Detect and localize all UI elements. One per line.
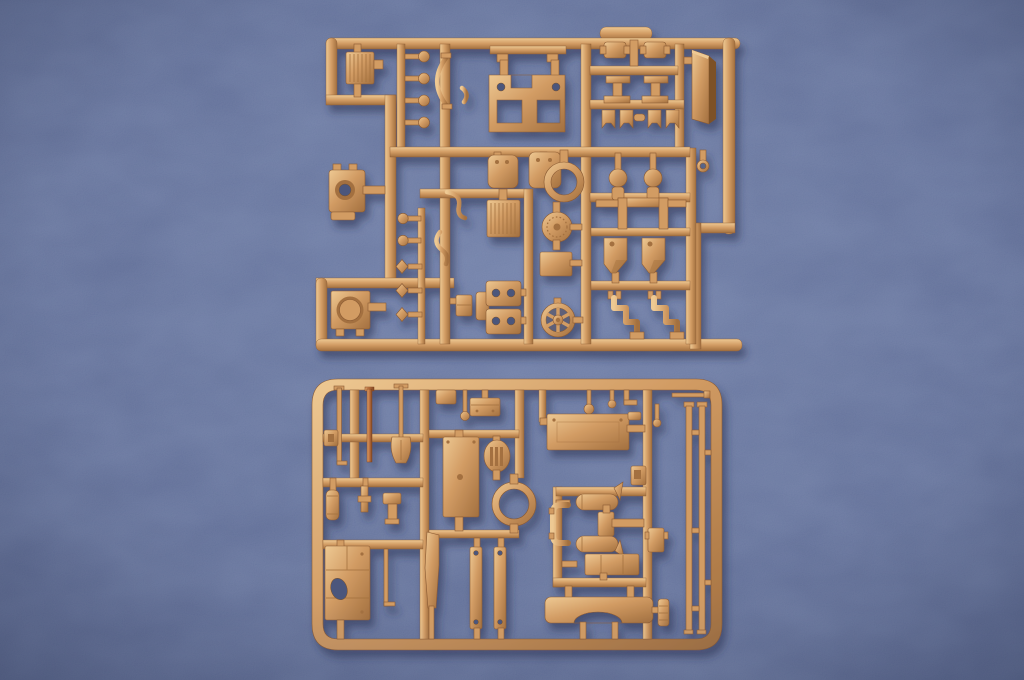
vignette <box>0 0 1024 680</box>
photo-canvas <box>0 0 1024 680</box>
sprue-photo <box>0 0 1024 680</box>
